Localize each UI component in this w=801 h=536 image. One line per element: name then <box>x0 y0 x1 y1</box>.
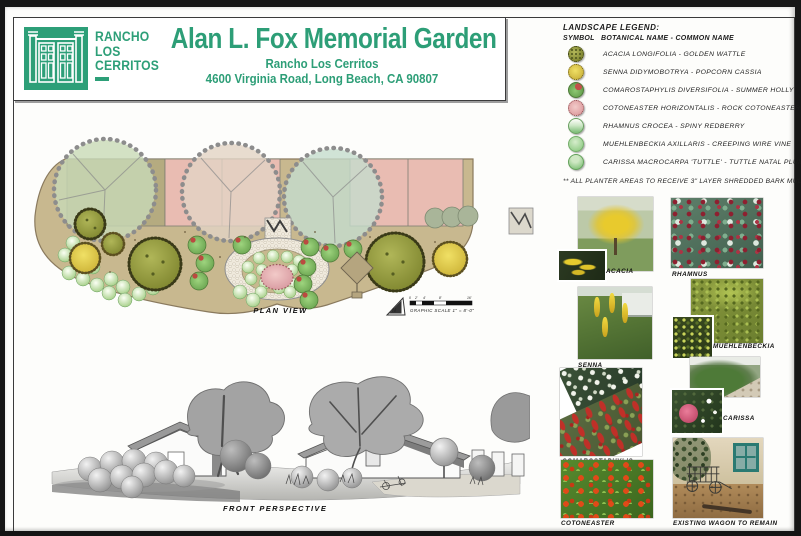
front-perspective-label: FRONT PERSPECTIVE <box>223 504 323 513</box>
legend-label: COTONEASTER HORIZONTALIS - ROCK COTONEAS… <box>603 105 800 112</box>
legend-title: LANDSCAPE LEGEND: <box>563 23 797 32</box>
legend-column-headers: SYMBOL BOTANICAL NAME - COMMON NAME <box>563 35 797 42</box>
paper-sheet: RANCHO LOS CERRITOS Alan L. Fox Memorial… <box>5 7 795 531</box>
project-subtitle: Rancho Los Cerritos <box>156 57 487 71</box>
carissa-flower-photo <box>672 390 722 433</box>
graphic-scale-label: GRAPHIC SCALE 1" = 8'-0" <box>410 308 474 313</box>
scan-edge <box>0 531 801 536</box>
carissa-pink-flower <box>679 404 698 423</box>
mulch-note: ** ALL PLANTER AREAS TO RECEIVE 3" LAYER… <box>563 178 797 185</box>
scale-tick: 16' <box>467 296 472 300</box>
legend-label: CARISSA MACROCARPA 'TUTTLE' - TUTTLE NAT… <box>603 159 801 166</box>
legend-label: ACACIA LONGIFOLIA - GOLDEN WATTLE <box>603 51 746 58</box>
senna-photo <box>578 287 652 359</box>
legend-row-senna: SENNA DIDYMOBOTRYA - POPCORN CASSIA <box>563 63 797 81</box>
comarostaphylis-photo <box>560 368 642 456</box>
logo-line: LOS <box>95 45 159 60</box>
carissa-photo-label: CARISSA <box>723 415 755 422</box>
legend-col-name: BOTANICAL NAME - COMMON NAME <box>601 35 734 42</box>
scanned-landscape-board: { "header": { "logo_lines": ["RANCHO", "… <box>0 0 801 536</box>
scale-tick: 8' <box>439 296 442 300</box>
logo-underline <box>95 77 109 81</box>
scale-tick: 2' <box>414 296 418 300</box>
senna-flower-spike <box>594 297 600 317</box>
rancho-los-cerritos-logo <box>24 27 88 90</box>
gravel <box>724 373 760 397</box>
senna-symbol-icon <box>568 64 584 80</box>
project-address: 4600 Virginia Road, Long Beach, CA 90807 <box>156 72 487 86</box>
muehlenbeckia-photo-label: MUEHLENBECKIA <box>713 343 775 350</box>
senna-flower-spike <box>609 293 615 313</box>
plan-view-drawing: N 0 2' 4' 8' 16' GRAPHIC SCALE 1" = 8'-0… <box>15 112 535 337</box>
logo-wordmark: RANCHO LOS CERRITOS <box>95 30 159 74</box>
rhamnus-symbol-icon <box>568 118 584 134</box>
historic-wagon <box>680 454 741 500</box>
gate-doors-icon <box>24 27 88 90</box>
legend-row-acacia: ACACIA LONGIFOLIA - GOLDEN WATTLE <box>563 45 797 63</box>
logo-line: CERRITOS <box>95 59 159 74</box>
rhamnus-photo <box>671 198 763 268</box>
legend-row-carissa: CARISSA MACROCARPA 'TUTTLE' - TUTTLE NAT… <box>563 153 797 171</box>
legend-label: MUEHLENBECKIA AXILLARIS - CREEPING WIRE … <box>603 141 791 148</box>
scale-tick: 4' <box>423 296 426 300</box>
comarostaphylis-symbol-icon <box>568 82 584 98</box>
graphic-scale-bar: 0 2' 4' 8' 16' GRAPHIC SCALE 1" = 8'-0" <box>409 296 474 313</box>
carissa-symbol-icon <box>568 154 584 170</box>
legend-row-cotoneaster: COTONEASTER HORIZONTALIS - ROCK COTONEAS… <box>563 99 797 117</box>
muehlenbeckia-symbol-icon <box>568 136 584 152</box>
plan-view-label: PLAN VIEW <box>233 306 328 315</box>
wagon-photo <box>673 438 763 518</box>
scale-tick: 0 <box>409 296 411 300</box>
cotoneaster-plan-symbol <box>261 265 293 290</box>
title-block: RANCHO LOS CERRITOS Alan L. Fox Memorial… <box>13 17 506 101</box>
legend-label: SENNA DIDYMOBOTRYA - POPCORN CASSIA <box>603 69 762 76</box>
front-perspective-drawing <box>40 372 530 512</box>
cotoneaster-symbol-icon <box>568 100 584 116</box>
legend-col-symbol: SYMBOL <box>563 35 601 42</box>
legend-row-comarostaphylis: COMAROSTAPHYLIS DIVERSIFOLIA - SUMMER HO… <box>563 81 797 99</box>
muehlenbeckia-inset-photo <box>673 317 712 358</box>
legend-label: RHAMNUS CROCEA - SPINY REDBERRY <box>603 123 745 130</box>
rhamnus-photo-label: RHAMNUS <box>672 271 708 278</box>
senna-flower-spike <box>622 303 628 323</box>
legend-row-rhamnus: RHAMNUS CROCEA - SPINY REDBERRY <box>563 117 797 135</box>
north-arrow: N <box>387 298 405 315</box>
wagon-photo-label: EXISTING WAGON TO REMAIN <box>673 520 778 527</box>
legend-row-muehlenbeckia: MUEHLENBECKIA AXILLARIS - CREEPING WIRE … <box>563 135 797 153</box>
acacia-symbol-icon <box>568 46 584 62</box>
senna-flower-spike <box>602 317 608 337</box>
acacia-trunk <box>614 238 617 256</box>
project-title: Alan L. Fox Memorial Garden <box>171 23 473 56</box>
legend-label: COMAROSTAPHYLIS DIVERSIFOLIA - SUMMER HO… <box>603 87 794 94</box>
logo-line: RANCHO <box>95 30 159 45</box>
utility-box <box>509 208 533 234</box>
landscape-legend: LANDSCAPE LEGEND: SYMBOL BOTANICAL NAME … <box>563 23 797 185</box>
hedge-row <box>425 206 478 228</box>
acacia-inset-photo <box>559 251 605 280</box>
acacia-photo-label: ACACIA <box>606 268 634 275</box>
north-label: N <box>392 308 396 314</box>
cotoneaster-photo-label: COTONEASTER <box>561 520 615 527</box>
cotoneaster-photo <box>561 460 653 518</box>
